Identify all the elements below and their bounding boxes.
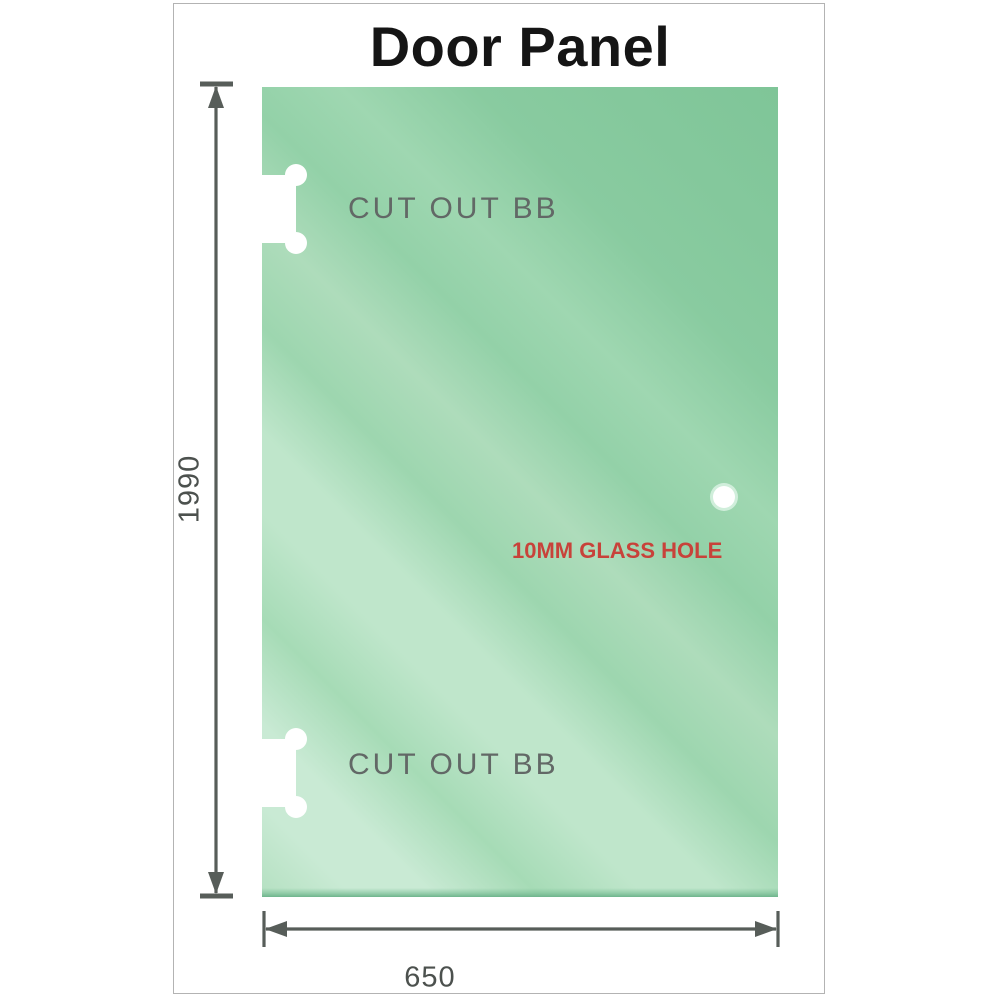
hinge-cutout-bottom-icon bbox=[252, 717, 312, 829]
page-title: Door Panel bbox=[262, 14, 778, 79]
glass-hole-label: 10MM GLASS HOLE bbox=[512, 538, 712, 564]
width-dimension-arrow-icon bbox=[256, 907, 786, 951]
cutout-label-bottom: CUT OUT BB bbox=[348, 748, 608, 782]
glass-hole-icon bbox=[713, 486, 735, 508]
hinge-cutout-top-icon bbox=[252, 153, 312, 265]
width-dimension-label: 650 bbox=[404, 962, 455, 995]
cutout-label-top: CUT OUT BB bbox=[348, 192, 608, 226]
height-dimension-label: 1990 bbox=[174, 455, 207, 524]
page-background: Door Panel CUT OUT BB CUT OUT BB 10MM GL… bbox=[0, 0, 1000, 1000]
